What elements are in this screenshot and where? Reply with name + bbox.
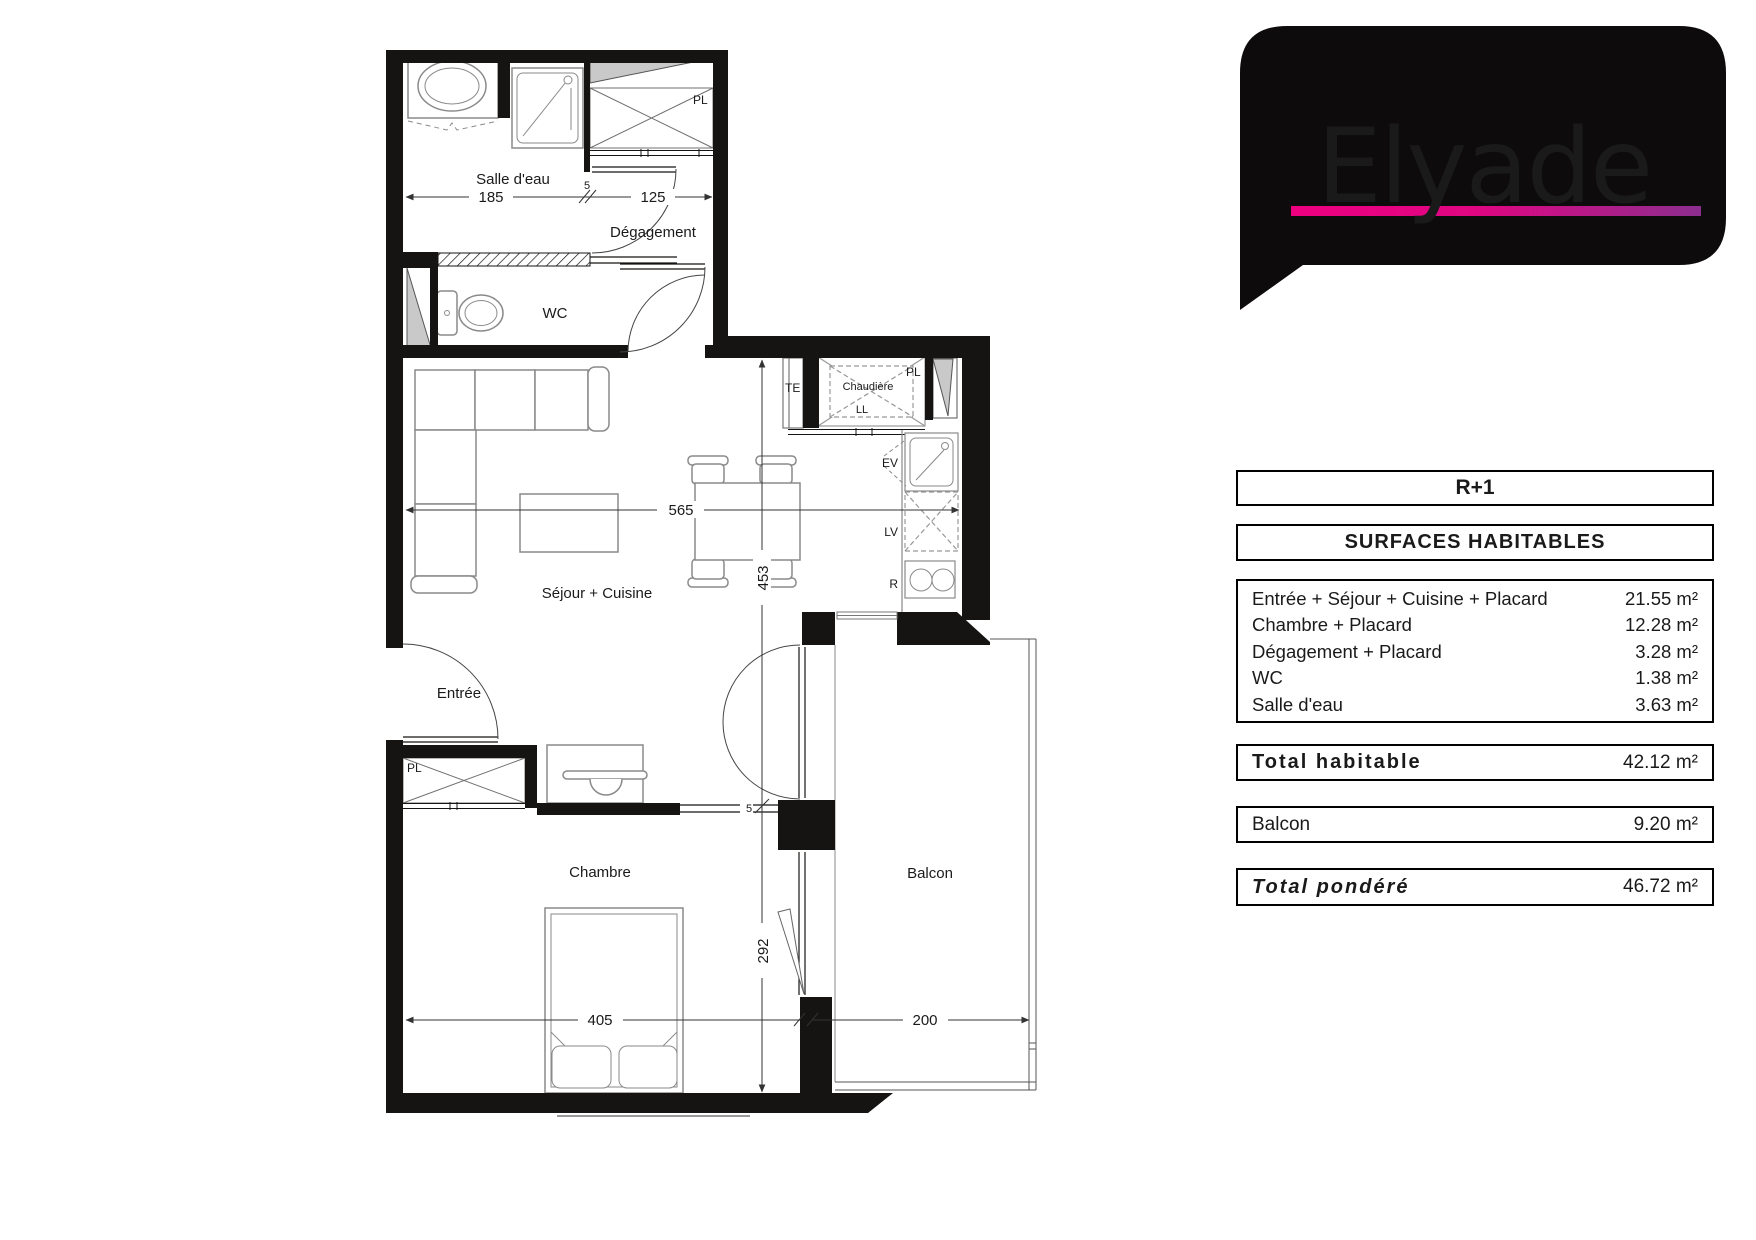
surface-row: WC 1.38 m² [1252,665,1698,691]
fixture-label-pl-kitchen: PL [906,365,921,379]
balcon-box: Balcon 9.20 m² [1236,806,1714,843]
fixture-label-ev: EV [882,456,898,470]
surface-row-value: 1.38 m² [1635,665,1698,691]
dim-292: 292 [755,938,772,963]
dim-200: 200 [912,1012,937,1029]
total-pondere-label: Total pondéré [1252,876,1409,899]
surface-row-label: Salle d'eau [1252,692,1343,718]
balcony-door-leaf [778,909,804,994]
desk-icon [547,745,647,803]
logo-brand-text: Elyade [1317,107,1652,227]
kitchen-window [837,612,897,619]
surface-row: Salle d'eau 3.63 m² [1252,692,1698,718]
room-label-wc: WC [543,305,568,322]
surface-row-value: 21.55 m² [1625,586,1698,612]
plan-labels: Salle d'eau Dégagement WC Séjour + Cuisi… [407,93,953,1029]
duct-shaft-icon [407,268,431,348]
room-label-entree: Entrée [437,685,481,702]
room-label-salle-deau: Salle d'eau [476,171,550,188]
bathroom-fixtures [408,55,583,148]
fixture-label-pl-entree: PL [407,761,422,775]
door-arc-degagement [628,275,705,352]
shower-drain-icon [564,76,572,84]
surface-row: Entrée + Séjour + Cuisine + Placard 21.5… [1252,586,1698,612]
surface-row-label: WC [1252,665,1283,691]
door-arc-wc [620,267,705,352]
closet-top [590,58,713,157]
page: Salle d'eau Dégagement WC Séjour + Cuisi… [0,0,1756,1240]
dim-185: 185 [478,189,503,206]
total-pondere-box: Total pondéré 46.72 m² [1236,868,1714,906]
sofa-icon [411,367,609,593]
balcon-value: 9.20 m² [1634,814,1698,836]
fixture-label-chaudiere: Chaudière [843,381,894,393]
balcon-label: Balcon [1252,814,1310,836]
coffee-table-icon [520,494,618,552]
fixture-label-r: R [889,577,898,591]
total-pondere-value: 46.72 m² [1623,876,1698,898]
surface-row-label: Entrée + Séjour + Cuisine + Placard [1252,586,1548,612]
fixture-label-pl-top: PL [693,93,708,107]
dim-5b: 5 [746,803,752,815]
fixture-label-ll: LL [856,404,868,416]
room-label-chambre: Chambre [569,864,631,881]
surfaces-header-box: SURFACES HABITABLES [1236,524,1714,561]
dining-set-icon [688,456,800,587]
hatched-wall [438,253,590,266]
total-habitable-box: Total habitable 42.12 m² [1236,744,1714,781]
surface-row-label: Dégagement + Placard [1252,639,1442,665]
level-box: R+1 [1236,470,1714,506]
fixture-label-te: TE [785,381,800,395]
dim-453: 453 [755,565,772,590]
room-label-degagement: Dégagement [610,224,697,241]
room-label-balcon: Balcon [907,865,953,882]
surface-row-value: 3.28 m² [1635,639,1698,665]
brand-logo: Elyade [1240,26,1726,310]
fixture-label-lv: LV [884,525,898,539]
surface-row-label: Chambre + Placard [1252,612,1412,638]
wc-fixtures [407,268,503,348]
surface-row-value: 3.63 m² [1635,692,1698,718]
surfaces-header-label: SURFACES HABITABLES [1345,531,1606,554]
surface-row-value: 12.28 m² [1625,612,1698,638]
surface-row: Chambre + Placard 12.28 m² [1252,612,1698,638]
living-furniture [411,367,800,1093]
total-habitable-label: Total habitable [1252,751,1422,774]
dim-5a: 5 [584,180,590,192]
dim-565: 565 [668,502,693,519]
dim-405: 405 [587,1012,612,1029]
total-habitable-value: 42.12 m² [1623,752,1698,774]
surface-row: Dégagement + Placard 3.28 m² [1252,639,1698,665]
dim-125: 125 [640,189,665,206]
room-label-sejour: Séjour + Cuisine [542,585,652,602]
bed-icon [545,908,683,1093]
cooktop-icon [905,561,955,598]
level-label: R+1 [1455,476,1494,500]
dishwasher-icon [905,492,958,551]
surfaces-rows-box: Entrée + Séjour + Cuisine + Placard 21.5… [1236,579,1714,723]
